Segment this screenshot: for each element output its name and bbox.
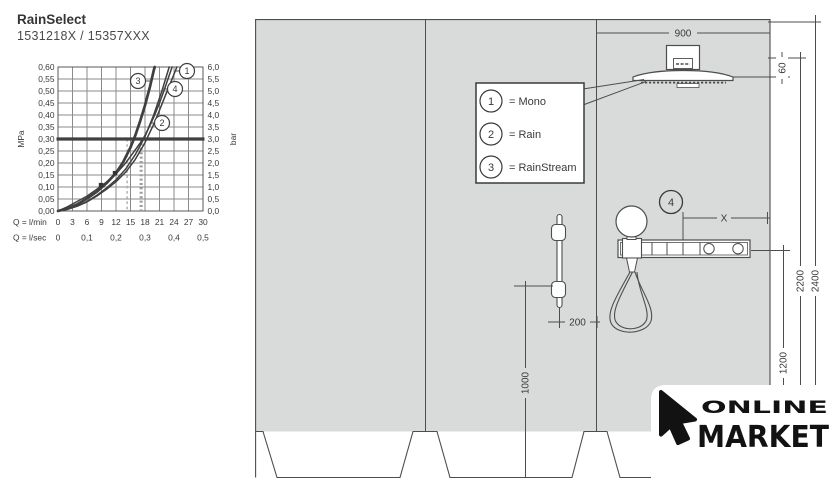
handshower-holder [623, 239, 642, 259]
svg-text:0,3: 0,3 [139, 233, 151, 243]
dim-label-2200: 2200 [796, 269, 807, 292]
flow-marker [99, 183, 103, 187]
logo-line1: ONLINE [701, 398, 828, 417]
svg-text:2: 2 [159, 118, 164, 128]
svg-text:2: 2 [488, 129, 494, 141]
trim-handle-right [733, 244, 743, 254]
svg-text:6: 6 [85, 217, 90, 227]
dim-label-1200: 1200 [779, 351, 790, 374]
title-block: RainSelect 1531218X / 15357XXX [17, 12, 150, 45]
svg-text:4,0: 4,0 [208, 110, 220, 120]
rainstream-nozzle-bar [677, 84, 699, 88]
svg-text:= RainStream: = RainStream [509, 162, 577, 174]
ylabel-mpa: MPa [16, 130, 26, 148]
flow-marker [113, 171, 117, 175]
dim-label-60: 60 [778, 62, 789, 74]
svg-text:0,4: 0,4 [168, 233, 180, 243]
svg-text:0,35: 0,35 [38, 122, 55, 132]
svg-text:27: 27 [184, 217, 194, 227]
svg-text:1: 1 [488, 96, 494, 108]
svg-text:0,10: 0,10 [38, 182, 55, 192]
xlabel-lsec: Q = l/sec [13, 233, 46, 243]
svg-text:30: 30 [198, 217, 208, 227]
svg-text:0,60: 0,60 [38, 62, 55, 72]
curve-label-4: 4 [162, 82, 183, 97]
svg-text:3,0: 3,0 [208, 134, 220, 144]
svg-text:9: 9 [99, 217, 104, 227]
svg-text:2,0: 2,0 [208, 158, 220, 168]
xlabel-lmin: Q = l/min [13, 217, 47, 227]
logo-online-market: ONLINE MARKET [651, 385, 840, 501]
curve-label-3: 3 [131, 74, 152, 89]
svg-text:3: 3 [70, 217, 75, 227]
curve-label-1: 1 [175, 64, 195, 79]
item-4-callout: 4 [660, 191, 683, 214]
svg-text:0,40: 0,40 [38, 110, 55, 120]
svg-text:5,0: 5,0 [208, 86, 220, 96]
ylabel-bar: bar [228, 133, 238, 145]
dim-label-2400: 2400 [811, 269, 822, 292]
svg-text:0,0: 0,0 [208, 206, 220, 216]
svg-text:15: 15 [126, 217, 136, 227]
performance-chart: 1 3 4 2 0,60 0,55 0,50 0,45 0,40 0,35 0,… [0, 50, 250, 255]
svg-text:3: 3 [135, 76, 140, 86]
svg-text:0,45: 0,45 [38, 98, 55, 108]
svg-text:0,15: 0,15 [38, 170, 55, 180]
trim-handle-left [704, 244, 714, 254]
svg-text:12: 12 [111, 217, 121, 227]
logo-line2: MARKET [697, 420, 829, 455]
svg-text:0,5: 0,5 [208, 194, 220, 204]
dim-label-x: X [721, 214, 728, 225]
svg-text:18: 18 [140, 217, 150, 227]
svg-text:0,00: 0,00 [38, 206, 55, 216]
handshower-head [616, 206, 647, 237]
svg-text:4: 4 [172, 84, 177, 94]
x-axis-lmin: 0 3 6 9 12 15 18 21 24 27 30 [56, 217, 208, 227]
dim-label-200: 200 [569, 318, 586, 329]
svg-text:5,5: 5,5 [208, 74, 220, 84]
svg-text:4,5: 4,5 [208, 98, 220, 108]
svg-text:6,0: 6,0 [208, 62, 220, 72]
svg-text:0,50: 0,50 [38, 86, 55, 96]
spec-sheet: RainSelect 1531218X / 15357XXX 1 3 [0, 0, 840, 501]
svg-text:3: 3 [488, 162, 494, 174]
svg-text:= Rain: = Rain [509, 129, 541, 141]
installation-diagram: 1 = Mono 2 = Rain 3 = RainStream [250, 5, 840, 501]
svg-text:24: 24 [169, 217, 179, 227]
svg-text:0,30: 0,30 [38, 134, 55, 144]
x-axis-lsec: 0 0,1 0,2 0,3 0,4 0,5 [56, 233, 209, 243]
svg-text:0,5: 0,5 [197, 233, 209, 243]
svg-text:0,2: 0,2 [110, 233, 122, 243]
svg-text:21: 21 [155, 217, 165, 227]
svg-text:0: 0 [56, 233, 61, 243]
svg-text:0: 0 [56, 217, 61, 227]
svg-text:3,5: 3,5 [208, 122, 220, 132]
y-axis-bar: 6,0 5,5 5,0 4,5 4,0 3,5 3,0 2,5 2,0 1,5 … [208, 62, 220, 216]
product-numbers: 1531218X / 15357XXX [17, 29, 150, 45]
svg-text:1: 1 [184, 66, 189, 76]
svg-text:0,25: 0,25 [38, 146, 55, 156]
wall-bar-bracket-top [552, 225, 566, 241]
svg-text:0,1: 0,1 [81, 233, 93, 243]
svg-text:0,05: 0,05 [38, 194, 55, 204]
svg-text:= Mono: = Mono [509, 96, 546, 108]
svg-text:1,5: 1,5 [208, 170, 220, 180]
y-axis-mpa: 0,60 0,55 0,50 0,45 0,40 0,35 0,30 0,25 … [38, 62, 55, 216]
dim-label-900: 900 [675, 29, 692, 40]
svg-text:0,20: 0,20 [38, 158, 55, 168]
page-title: RainSelect [17, 12, 150, 29]
svg-text:4: 4 [668, 197, 674, 209]
svg-text:0,55: 0,55 [38, 74, 55, 84]
svg-text:1,0: 1,0 [208, 182, 220, 192]
wall-bar-bracket-bottom [552, 282, 566, 298]
svg-text:2,5: 2,5 [208, 146, 220, 156]
dim-label-1000: 1000 [521, 371, 532, 394]
